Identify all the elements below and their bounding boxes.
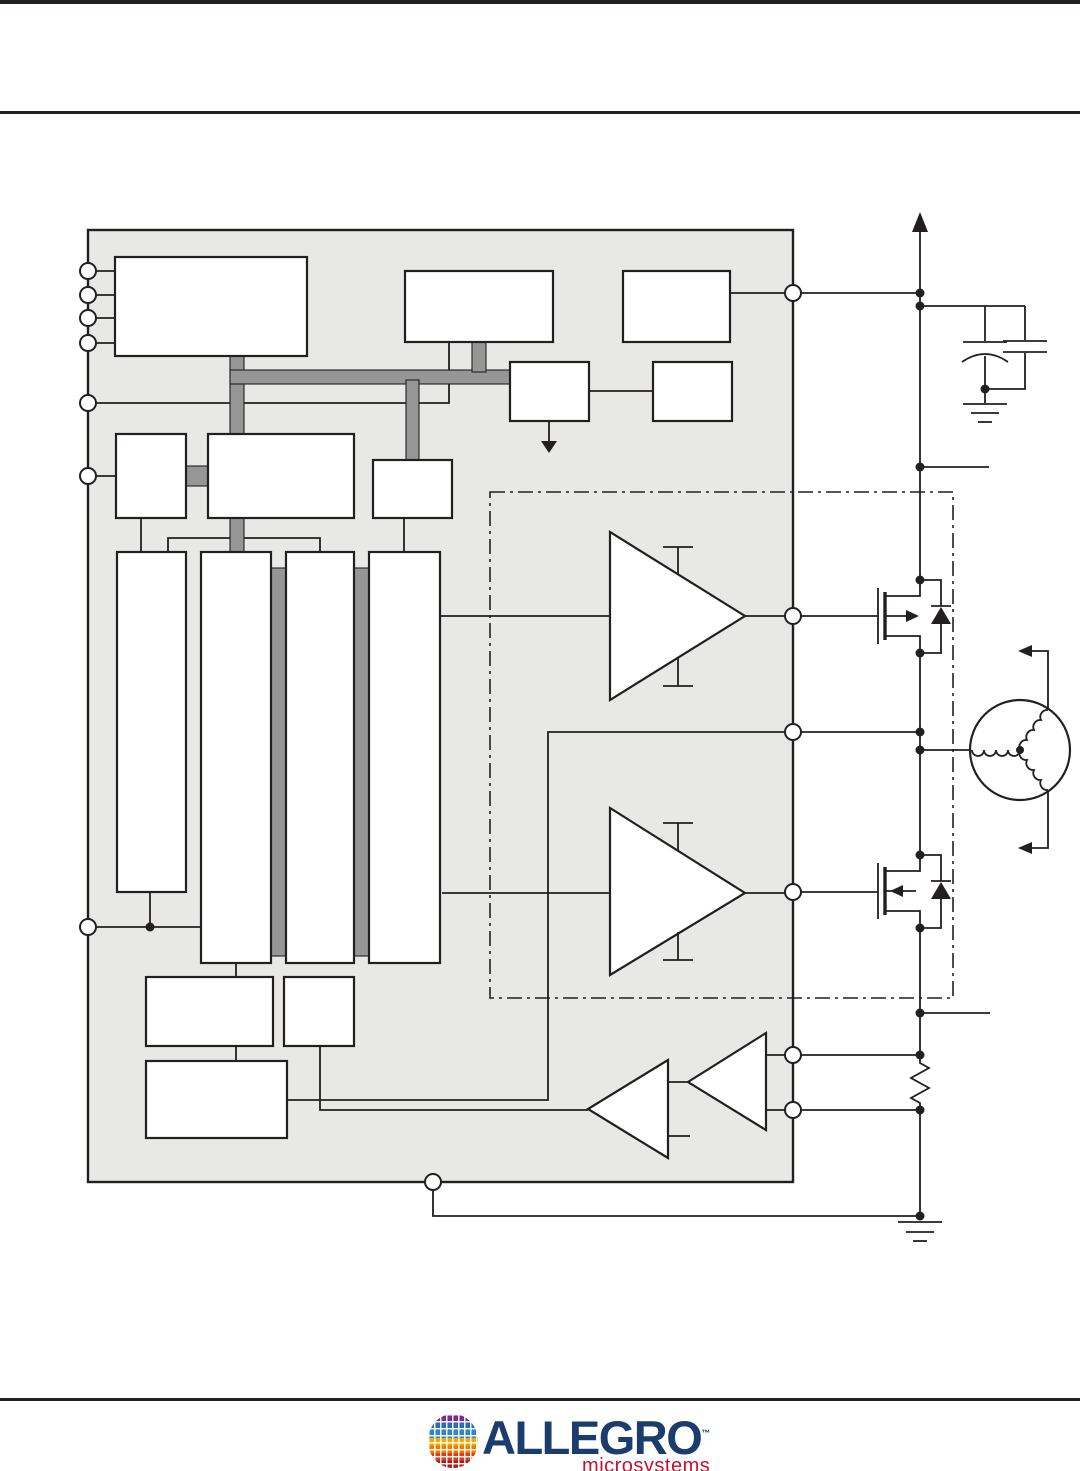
junction-dot [916, 851, 925, 860]
bus-down-branch [406, 380, 419, 460]
box-bottom-b [284, 977, 354, 1046]
motor-star-point [1016, 746, 1024, 754]
sense-resistor [911, 1055, 929, 1110]
pin-terminal-gnd [425, 1174, 441, 1190]
trademark-symbol: ™ [701, 1428, 710, 1438]
motor-tap-top-arrow [1018, 645, 1032, 657]
cap2-lead-bottom [985, 353, 1025, 389]
junction-dot [916, 463, 925, 472]
box-bottom-c [146, 1061, 287, 1138]
pin-terminal-gate-high [785, 608, 801, 624]
diagram-svg [0, 0, 1080, 1471]
bus-col-2-3 [271, 568, 286, 956]
pin-terminal-sense-p [785, 1047, 801, 1063]
column-2 [201, 552, 271, 963]
junction-dot [916, 1051, 925, 1060]
allegro-wafer-icon [428, 1414, 478, 1468]
pin-terminal-left-7 [80, 919, 96, 935]
column-4 [369, 552, 440, 963]
column-1 [117, 552, 186, 892]
bus-left-link [184, 466, 210, 486]
box-left-wide [208, 434, 354, 518]
diode-high-lead2 [920, 624, 941, 653]
gnd-return-wire [433, 1190, 920, 1216]
motor-tap-bottom-arrow [1018, 842, 1032, 854]
diode-low-lead [920, 855, 941, 881]
footer-rule [0, 1398, 1080, 1401]
allegro-wordmark: ALLEGRO™ [482, 1411, 710, 1460]
page: ALLEGRO™ microsystems [0, 0, 1080, 1471]
box-mid-2 [653, 362, 732, 421]
junction-dot [916, 302, 925, 311]
junction-dot [916, 1212, 925, 1221]
column-3 [286, 552, 354, 963]
fet-high-source [886, 636, 920, 653]
box-center-small [373, 460, 452, 518]
box-left-small [116, 434, 186, 518]
junction-dot [916, 728, 925, 737]
allegro-logo: ALLEGRO™ microsystems [428, 1411, 710, 1471]
pin-terminal-supply [785, 285, 801, 301]
diode-low-anode [931, 882, 951, 899]
vbb-arrowhead [912, 212, 928, 232]
pin-terminal-left-5 [80, 395, 96, 411]
bus-up-branch [472, 342, 486, 372]
junction-dot [981, 385, 990, 394]
junction-dot [916, 924, 925, 933]
box-top-left [115, 257, 307, 356]
allegro-logo-text: ALLEGRO™ microsystems [482, 1411, 710, 1471]
pin-terminal-left-3 [80, 310, 96, 326]
junction-dot [916, 576, 925, 585]
pin-terminal-left-6 [80, 468, 96, 484]
box-bottom-a [146, 977, 273, 1046]
fet-low-source [886, 911, 920, 928]
junction-dot [916, 1009, 925, 1018]
junction-dot [916, 649, 925, 658]
bus-col-3-4 [354, 568, 369, 956]
box-top-middle [405, 271, 553, 342]
pin-terminal-left-1 [80, 263, 96, 279]
diode-high-anode [931, 607, 951, 624]
box-top-right [623, 271, 730, 342]
junction-dot [916, 1106, 925, 1115]
fet-low-drain [886, 855, 920, 871]
bus-horizontal [230, 370, 510, 384]
junction-dot [916, 746, 925, 755]
junction-dot [916, 289, 925, 298]
junction-dot [146, 923, 155, 932]
fet-low-body-arrow [890, 885, 903, 897]
pin-terminal-left-2 [80, 287, 96, 303]
diode-high-lead [920, 580, 941, 606]
diode-low-lead2 [920, 899, 941, 928]
pin-terminal-sense-n [785, 1102, 801, 1118]
pin-terminal-left-4 [80, 335, 96, 351]
box-mid-1 [510, 362, 589, 421]
pin-terminal-phase [785, 724, 801, 740]
pin-terminal-gate-low [785, 884, 801, 900]
fet-high-body-arrow [906, 610, 919, 622]
fet-high-drain [886, 580, 920, 596]
